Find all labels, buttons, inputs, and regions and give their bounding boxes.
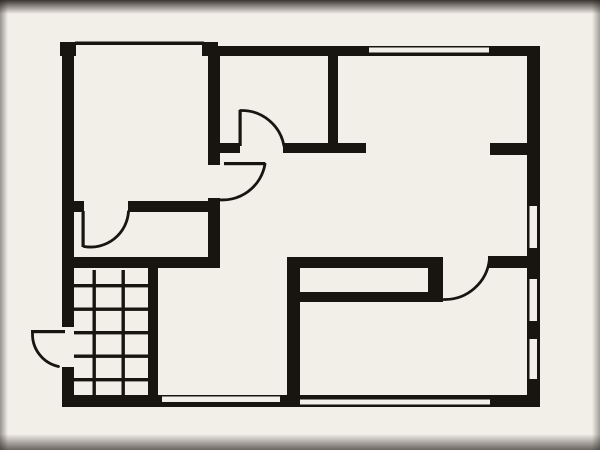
outer-wall-left-upper <box>62 42 74 327</box>
kitchen-counter-top-band <box>287 257 443 268</box>
window-top-right <box>369 48 489 53</box>
door-bathroom-leaf <box>239 110 242 146</box>
window-right-middle <box>530 279 538 321</box>
door-bathroom-swing-arc <box>241 110 285 146</box>
floorplan-photo <box>0 0 600 450</box>
top-right-room-bottom-stub <box>490 143 527 155</box>
door-bedroom-to-landing-swing-arc <box>84 212 129 248</box>
bedroom-right-wall-upper <box>208 52 220 165</box>
door-bedroom-to-landing-leaf <box>82 211 85 247</box>
door-entrance-exterior-leaf <box>31 330 65 333</box>
door-bedroom-to-hall-swing-arc <box>217 164 266 200</box>
bedroom-bottom-wall <box>128 201 220 212</box>
bathroom-right-wall <box>328 56 338 147</box>
window-bottom-right <box>300 400 490 405</box>
window-right-lower <box>530 339 538 379</box>
outer-wall-top-window-end-block <box>202 42 218 48</box>
kitchen-counter-right-connector <box>428 268 443 292</box>
door-entrance-exterior-swing-arc <box>32 334 58 367</box>
staircase-tread-line-h3 <box>74 331 148 334</box>
staircase-tread-line-h5 <box>74 378 148 381</box>
window-top-left-line <box>75 42 204 46</box>
staircase-tread-line-h4 <box>74 355 148 358</box>
bedroom-bottom-wall-stub <box>74 201 84 212</box>
floor-plan <box>0 0 600 450</box>
kitchen-top-wall-right-stub <box>488 256 527 268</box>
hall-top-wall-right-segment <box>283 143 366 153</box>
stair-right-wall <box>148 268 158 395</box>
hall-top-wall-left-segment <box>220 143 240 153</box>
kitchen-left-wall <box>287 258 300 395</box>
staircase-tread-line-h1 <box>74 284 148 287</box>
staircase-tread-line-h2 <box>74 308 148 311</box>
kitchen-counter-bottom-band <box>300 292 443 302</box>
window-right-upper <box>530 206 538 248</box>
door-kitchen-swing-arc <box>444 259 490 300</box>
door-bedroom-to-hall-leaf <box>224 162 265 165</box>
landing-bottom-wall <box>74 257 220 268</box>
window-bottom-left <box>162 397 280 403</box>
